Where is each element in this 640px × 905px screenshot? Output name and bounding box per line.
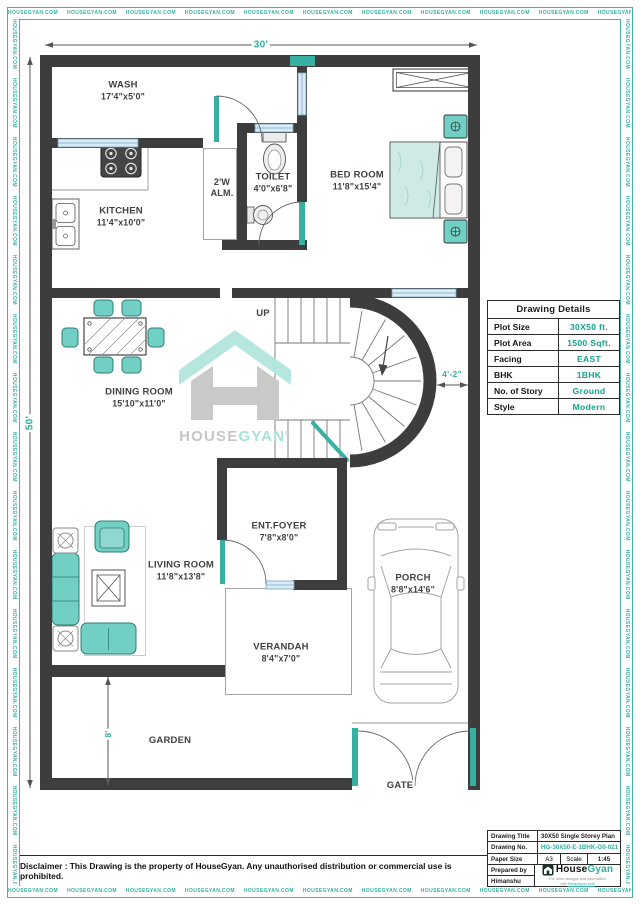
details-row: FacingEAST bbox=[488, 351, 619, 367]
car-mirror bbox=[368, 577, 375, 590]
wall-toilet-left bbox=[237, 123, 247, 250]
room-label-living: LIVING ROOM11'8"x13'8" bbox=[148, 560, 214, 583]
dining-chair bbox=[94, 357, 113, 373]
room-label-gate: GATE bbox=[385, 780, 415, 792]
dimension-top-30ft: 30' bbox=[252, 40, 270, 51]
bedroom-furniture bbox=[390, 69, 475, 243]
footer-logo: HouseGyan For more designs and informati… bbox=[535, 865, 620, 886]
bed-blanket bbox=[390, 142, 440, 218]
details-row: Plot Area1500 Sqft. bbox=[488, 335, 619, 351]
title-block: Drawing Title 30X50 Single Storey Plan D… bbox=[487, 830, 621, 887]
wall-kitchen-dining bbox=[40, 288, 220, 298]
car bbox=[368, 519, 464, 703]
room-label-foyer: ENT.FOYER7'8"x8'0" bbox=[251, 521, 306, 544]
footer-tagline: For more designs and information visit H… bbox=[549, 877, 606, 888]
watermark-house-text: HOUSE bbox=[179, 428, 238, 445]
room-label-bedroom: BED ROOM11'8"x15'4" bbox=[330, 170, 384, 193]
prepared-by-value: Himanshu bbox=[488, 876, 534, 886]
disclaimer-text: Disclaimer : This Drawing is the propert… bbox=[20, 855, 487, 886]
wall-foyer-right bbox=[337, 468, 347, 588]
dining-chair bbox=[148, 328, 164, 347]
footer-logo-house: House bbox=[556, 864, 588, 875]
title-block-row: Drawing Title 30X50 Single Storey Plan bbox=[488, 831, 620, 842]
dimension-stair-4-2: 4'-2" bbox=[440, 369, 464, 379]
stair-door bbox=[313, 423, 347, 460]
wall-living-bottom bbox=[40, 665, 225, 677]
wc-tank bbox=[263, 132, 286, 142]
details-title: Drawing Details bbox=[488, 301, 619, 319]
registered-mark: ® bbox=[285, 431, 291, 437]
stairs-up-label: UP bbox=[256, 308, 270, 320]
details-row: No. of StoryGround bbox=[488, 383, 619, 399]
washbasin bbox=[254, 206, 273, 225]
drawing-sheet: HOUSEGYAN.COM HOUSEGYAN.COM HOUSEGYAN.CO… bbox=[0, 0, 640, 905]
pillow bbox=[445, 184, 462, 214]
footer-logo-gyan: Gyan bbox=[587, 864, 613, 875]
gate-post-left bbox=[352, 728, 358, 786]
floor-plan-drawing bbox=[0, 0, 640, 905]
gate-leaf-right bbox=[415, 731, 470, 786]
watermark-gyan-text: GYAN bbox=[238, 428, 285, 445]
wall-toilet-bottom bbox=[222, 240, 307, 250]
plant-pot bbox=[53, 626, 78, 651]
wall-living-right bbox=[217, 468, 227, 540]
drawing-details-table: Drawing Details Plot Size30X50 ft. Plot … bbox=[487, 300, 620, 415]
housegyan-watermark: HOUSEGYAN® bbox=[170, 324, 300, 445]
title-block-row: Prepared by Himanshu HouseGyan For more … bbox=[488, 865, 620, 886]
title-block-row: Drawing No. HG-30X50-E-1BHK-G0-021 bbox=[488, 842, 620, 853]
wall-exterior-top bbox=[40, 55, 480, 67]
kitchen-sink bbox=[52, 199, 79, 249]
room-label-porch: PORCH8'8"x14'6" bbox=[391, 573, 435, 596]
door-main-entry bbox=[220, 540, 225, 584]
room-label-almirah: 2'W ALM. bbox=[206, 177, 238, 200]
room-label-verandah: VERANDAH8'4"x7'0" bbox=[253, 642, 308, 665]
room-label-kitchen: KITCHEN11'4"x10'0" bbox=[97, 206, 146, 229]
footer-link[interactable]: Housegyan.com bbox=[568, 882, 595, 886]
details-row: Plot Size30X50 ft. bbox=[488, 319, 619, 335]
stair-direction-arrow bbox=[383, 336, 388, 367]
door-toilet bbox=[299, 202, 305, 245]
room-label-toilet: TOILET4'0"x6'8" bbox=[254, 172, 293, 195]
dimension-left-50ft: 50' bbox=[25, 414, 36, 432]
housegyan-house-icon bbox=[175, 324, 295, 420]
car-mirror bbox=[457, 577, 464, 590]
prepared-by-label: Prepared by bbox=[488, 865, 534, 876]
room-label-wash: WASH17'4"x5'0" bbox=[101, 80, 145, 103]
bedside-table bbox=[444, 220, 467, 243]
wall-hall-bottom bbox=[217, 458, 347, 468]
wall-exterior-bottom bbox=[40, 778, 352, 790]
gate-leaf-left bbox=[358, 731, 413, 786]
dimension-garden-8ft: 8' bbox=[103, 728, 113, 739]
window-top-wash bbox=[290, 56, 315, 66]
details-row: StyleModern bbox=[488, 399, 619, 414]
washbasin-stand bbox=[247, 207, 254, 223]
dining-chair bbox=[62, 328, 78, 347]
dining-chair bbox=[122, 357, 141, 373]
sofa-three-seat bbox=[52, 553, 79, 625]
kitchen-fixtures bbox=[52, 144, 141, 249]
plant-pot bbox=[53, 528, 78, 553]
room-label-garden: GARDEN bbox=[149, 735, 191, 747]
wall-exterior-left bbox=[40, 55, 52, 790]
wall-foyer-bottom bbox=[293, 580, 347, 590]
pillow bbox=[445, 147, 462, 177]
gate-post-right bbox=[470, 728, 476, 786]
dining-chair bbox=[122, 300, 141, 316]
door-wash bbox=[214, 96, 219, 142]
dining-chair bbox=[94, 300, 113, 316]
room-label-dining: DINING ROOM15'10"x11'0" bbox=[105, 387, 173, 410]
details-row: BHK1BHK bbox=[488, 367, 619, 383]
bedside-table bbox=[444, 115, 467, 138]
dining-set bbox=[62, 300, 164, 373]
wall-exterior-right bbox=[468, 55, 480, 790]
living-furniture bbox=[52, 521, 136, 654]
housegyan-footer-icon bbox=[542, 864, 554, 876]
housegyan-watermark-text: HOUSEGYAN® bbox=[170, 428, 300, 445]
